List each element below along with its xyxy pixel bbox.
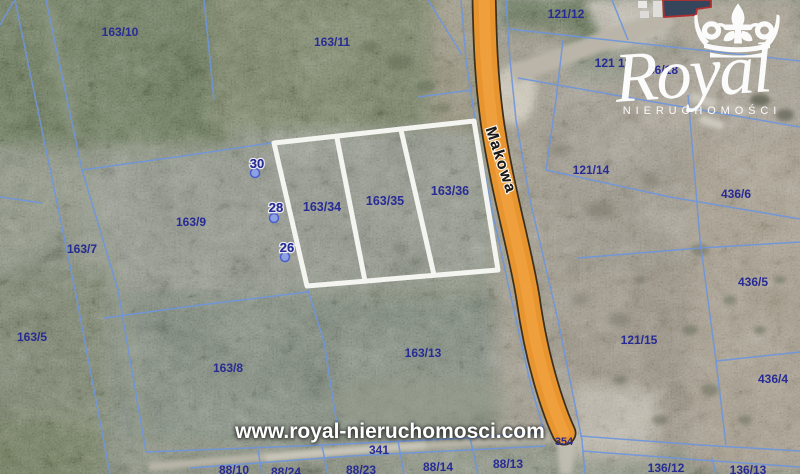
svg-text:354: 354 xyxy=(555,436,574,448)
svg-text:163/34: 163/34 xyxy=(303,200,341,214)
svg-text:436/5: 436/5 xyxy=(738,275,768,289)
svg-text:30: 30 xyxy=(250,156,264,171)
svg-text:NIERUCHOMOŚCI: NIERUCHOMOŚCI xyxy=(623,104,781,117)
svg-text:163/9: 163/9 xyxy=(176,215,206,229)
svg-text:163/11: 163/11 xyxy=(314,35,350,49)
svg-text:88/24: 88/24 xyxy=(271,465,301,474)
svg-text:121/15: 121/15 xyxy=(621,333,658,347)
svg-text:341: 341 xyxy=(369,443,389,457)
svg-text:436/6: 436/6 xyxy=(721,187,751,201)
svg-text:26: 26 xyxy=(280,240,294,255)
svg-text:163/7: 163/7 xyxy=(67,242,97,256)
svg-text:163/10: 163/10 xyxy=(102,25,139,39)
svg-text:163/35: 163/35 xyxy=(366,194,404,208)
svg-text:88/23: 88/23 xyxy=(346,463,376,474)
svg-text:136/13: 136/13 xyxy=(730,463,767,474)
svg-text:163/13: 163/13 xyxy=(405,346,442,360)
svg-text:88/13: 88/13 xyxy=(493,457,523,471)
svg-text:121/14: 121/14 xyxy=(573,163,610,177)
svg-text:88/14: 88/14 xyxy=(423,460,453,474)
svg-text:436/4: 436/4 xyxy=(758,372,788,386)
svg-text:163/8: 163/8 xyxy=(213,361,243,375)
svg-text:163/5: 163/5 xyxy=(17,330,47,344)
svg-text:www.royal-nieruchomosci.com: www.royal-nieruchomosci.com xyxy=(234,420,545,443)
svg-text:163/36: 163/36 xyxy=(431,184,469,198)
svg-text:136/12: 136/12 xyxy=(648,461,685,474)
svg-text:28: 28 xyxy=(269,200,283,215)
svg-text:121/12: 121/12 xyxy=(548,7,585,21)
svg-text:88/10: 88/10 xyxy=(219,463,249,474)
